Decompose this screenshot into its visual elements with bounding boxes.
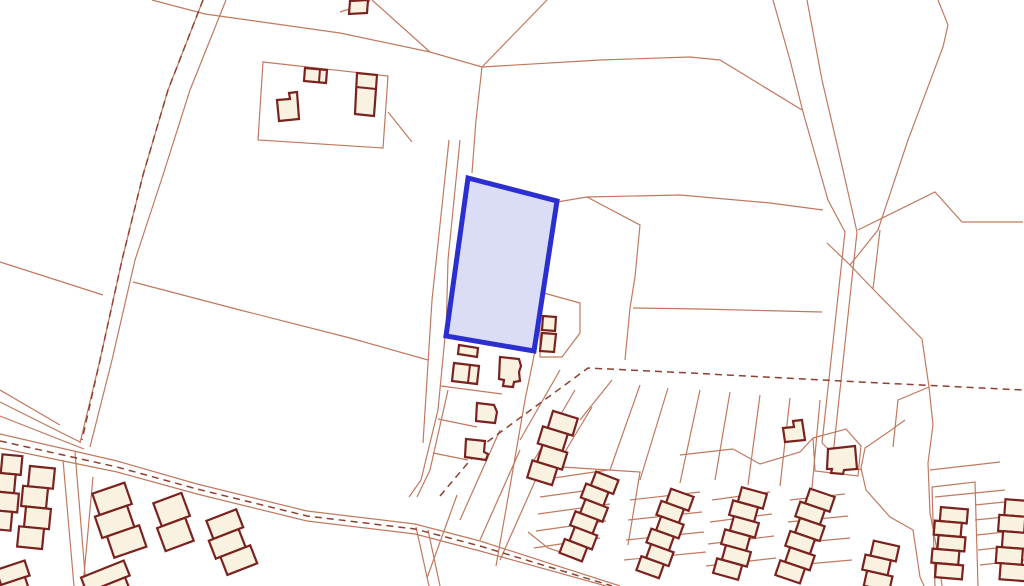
- building: [476, 403, 497, 423]
- terrace-house-unit: [0, 492, 19, 513]
- building: [355, 73, 377, 116]
- building: [304, 68, 327, 83]
- highlighted-parcel: [446, 178, 557, 351]
- building: [540, 333, 556, 352]
- terrace-house-unit: [0, 473, 16, 494]
- site-plan-map: [0, 0, 1024, 586]
- terrace-house-unit: [1000, 563, 1024, 581]
- building: [349, 0, 368, 14]
- building: [465, 439, 488, 460]
- building: [458, 345, 478, 357]
- terrace-house-unit: [998, 515, 1024, 533]
- map-canvas: [0, 0, 1024, 586]
- building: [827, 446, 857, 474]
- terrace-house-unit: [28, 466, 55, 489]
- highlight-layer: [446, 178, 557, 351]
- building-divider: [319, 69, 320, 82]
- terrace-house-unit: [17, 526, 44, 549]
- terrace-house-unit: [24, 507, 51, 530]
- terrace-house-unit: [21, 486, 48, 509]
- terrace-house-unit: [935, 563, 963, 579]
- terrace-house-unit: [1, 454, 23, 475]
- building: [452, 363, 479, 384]
- building: [542, 316, 556, 331]
- terrace-house-unit: [0, 510, 12, 531]
